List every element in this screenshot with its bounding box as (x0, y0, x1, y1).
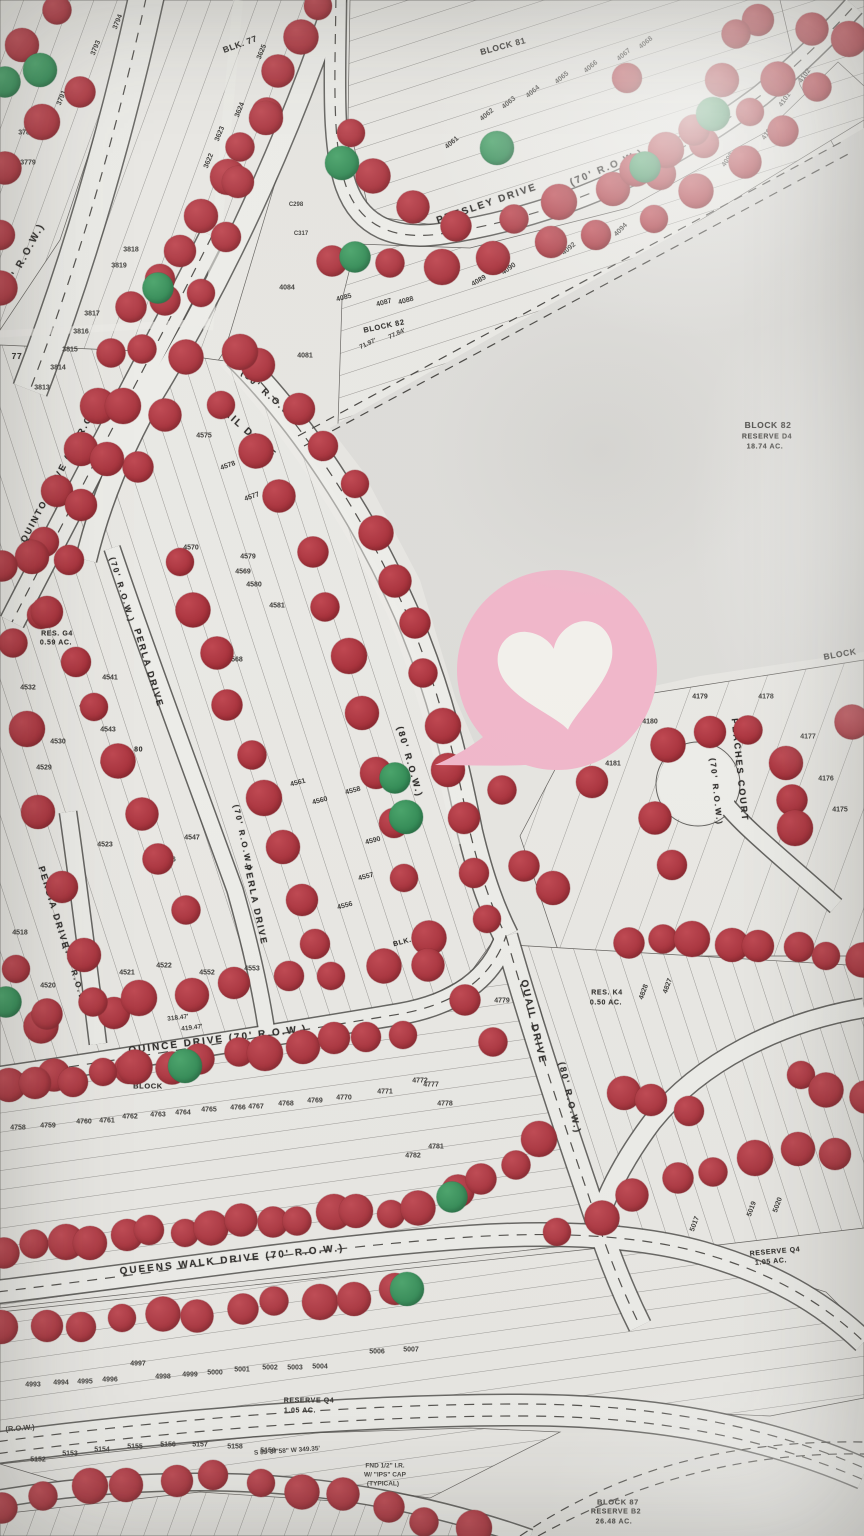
heart-pin-overlay (0, 0, 864, 1536)
plat-map-photo: (100' R.O.W.)QUINTO DRIVE (80' R.O.W.)PR… (0, 0, 864, 1536)
heart-location-pin (435, 570, 657, 770)
